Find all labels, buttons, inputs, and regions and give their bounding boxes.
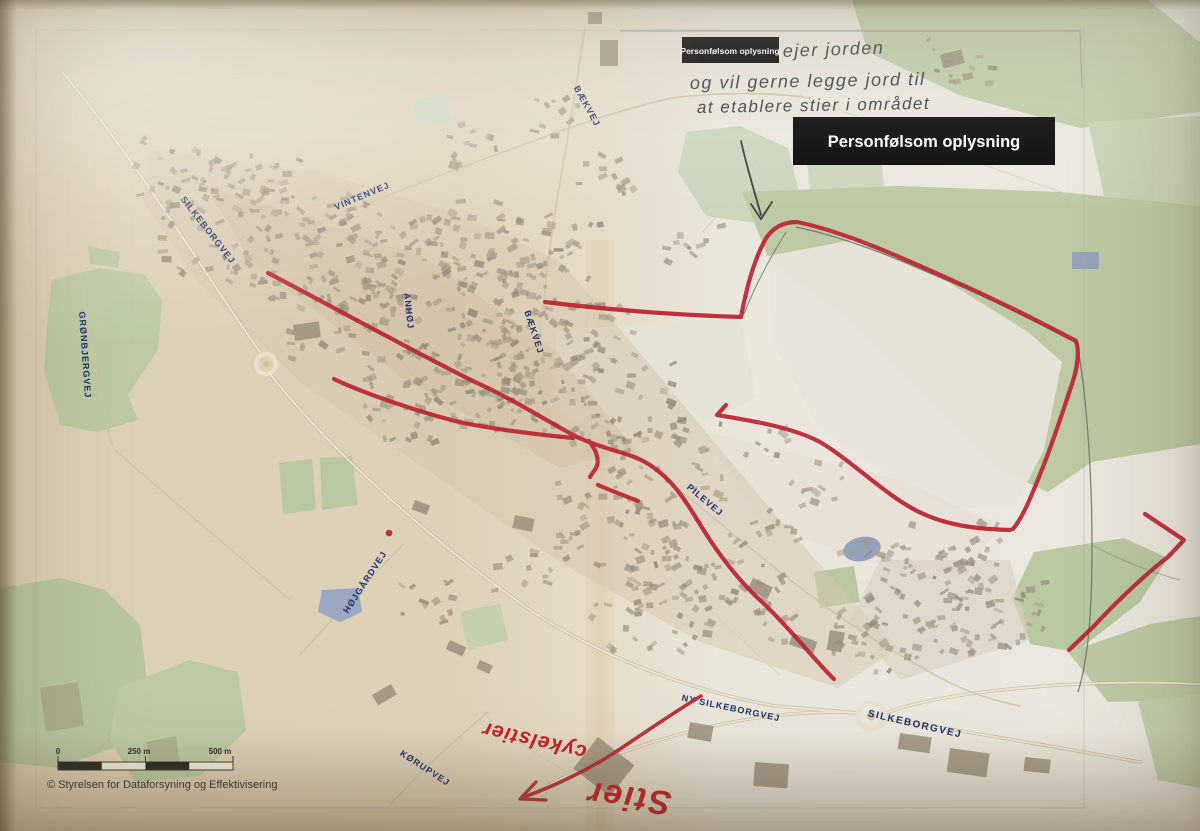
- attribution-text: © Styrelsen for Dataforsyning og Effekti…: [47, 779, 277, 791]
- scale-label-end: 500 m: [209, 747, 232, 756]
- ink-note-line3: at etablere stier i området: [697, 94, 931, 117]
- red-dot: [386, 530, 393, 537]
- redaction-text-small: Personfølsom oplysning: [680, 46, 779, 56]
- scale-label-zero: 0: [56, 747, 61, 756]
- lake: [1072, 252, 1099, 269]
- map-svg: SILKEBORGVEJ VINTENVEJ BÆKVEJ GRØNBJERGV…: [0, 0, 1200, 831]
- redaction-text-large: Personfølsom oplysning: [828, 133, 1021, 151]
- scale-label-mid: 250 m: [128, 747, 151, 756]
- ink-note-line2: og vil gerne legge jord til: [690, 69, 926, 93]
- ink-note-line1: ejer jorden: [782, 37, 884, 61]
- map-photo: SILKEBORGVEJ VINTENVEJ BÆKVEJ GRØNBJERGV…: [0, 0, 1200, 831]
